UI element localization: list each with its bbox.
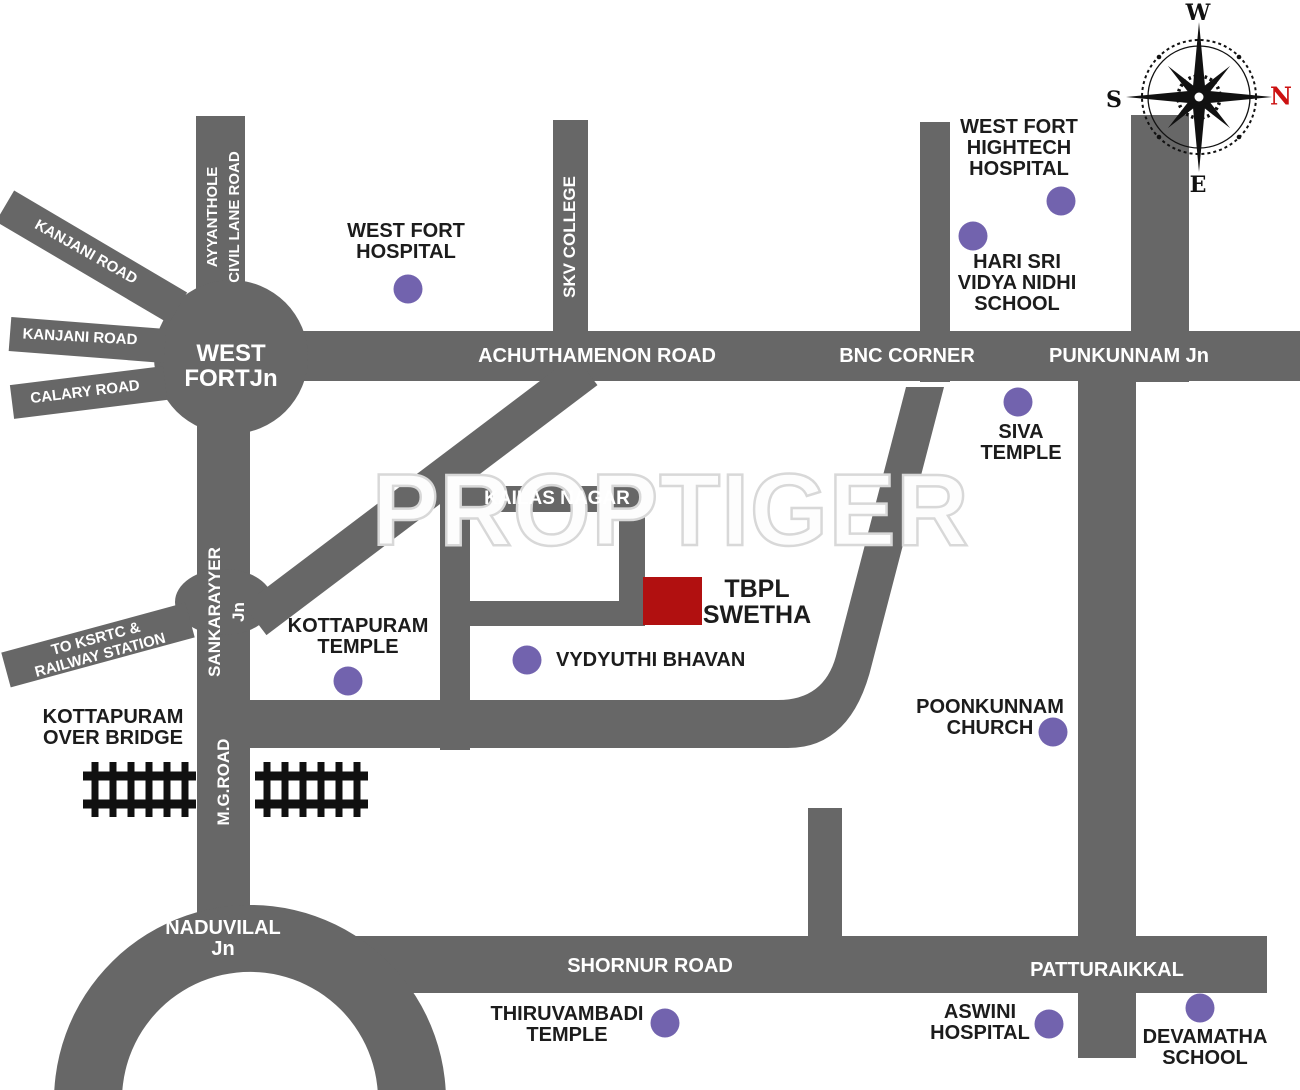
- west-fort-hospital-dot: [394, 275, 423, 304]
- watermark: PROPTIGER: [372, 452, 970, 569]
- project-name-line1: TBPL: [703, 576, 811, 602]
- west-fort-jn-label: WEST FORTJn: [184, 341, 277, 391]
- hari-sri-school-dot: [959, 222, 988, 251]
- west-fort-jn-line2: FORTJn: [184, 366, 277, 391]
- hari-sri-line3: SCHOOL: [958, 294, 1077, 315]
- kottapuram-temple-line1: KOTTAPURAM: [288, 616, 429, 637]
- devamatha-school-label: DEVAMATHA SCHOOL: [1143, 1027, 1268, 1069]
- project-marker: [643, 577, 702, 625]
- hightech-line2: HIGHTECH: [960, 138, 1078, 159]
- naduvilal-line2: Jn: [165, 939, 281, 960]
- west-fort-hightech-hospital-dot: [1047, 187, 1076, 216]
- thiruvambadi-line2: TEMPLE: [491, 1025, 644, 1046]
- siva-temple-label: SIVA TEMPLE: [980, 422, 1061, 464]
- compass-east-label: E: [1190, 172, 1207, 198]
- hightech-line3: HOSPITAL: [960, 159, 1078, 180]
- shornur-road-label: SHORNUR ROAD: [567, 956, 733, 977]
- devamatha-line1: DEVAMATHA: [1143, 1027, 1268, 1048]
- skv-college-label: SKV COLLEGE: [558, 176, 582, 298]
- west-fort-jn-line1: WEST: [184, 341, 277, 366]
- aswini-hospital-dot: [1035, 1010, 1064, 1039]
- kottapuram-bridge-line2: OVER BRIDGE: [43, 728, 184, 749]
- aswini-line2: HOSPITAL: [930, 1023, 1030, 1044]
- siva-temple-dot: [1004, 388, 1033, 417]
- devamatha-school-dot: [1186, 994, 1215, 1023]
- kailas-nagar-label: KAILAS NAGAR: [484, 488, 630, 509]
- railway-left-segment: [83, 762, 196, 817]
- west-fort-hospital-line1: WEST FORT: [347, 221, 465, 242]
- project-name-label: TBPL SWETHA: [703, 576, 811, 628]
- thiruvambadi-line1: THIRUVAMBADI: [491, 1004, 644, 1025]
- hari-sri-vidya-nidhi-school-label: HARI SRI VIDYA NIDHI SCHOOL: [958, 252, 1077, 315]
- mg-road-label: M.G.ROAD: [212, 739, 236, 826]
- shornur-stub-road-shape: [808, 808, 842, 939]
- naduvilal-line1: NADUVILAL: [165, 918, 281, 939]
- hari-sri-line1: HARI SRI: [958, 252, 1077, 273]
- railway-right-segment: [255, 762, 368, 817]
- aswini-line1: ASWINI: [930, 1002, 1030, 1023]
- bnc-corner-label: BNC CORNER: [839, 346, 975, 367]
- achuthamenon-road-label: ACHUTHAMENON ROAD: [478, 346, 716, 367]
- vydyuthi-bhavan-label: VYDYUTHI BHAVAN: [556, 650, 745, 671]
- kottapuram-bridge-line1: KOTTAPURAM: [43, 707, 184, 728]
- sankarayyer-line1: SANKARAYYER: [203, 547, 227, 677]
- poonkunnam-line1: POONKUNNAM: [916, 697, 1064, 718]
- compass-north-label: N: [1270, 82, 1292, 111]
- kottapuram-temple-label: KOTTAPURAM TEMPLE: [288, 616, 429, 658]
- west-fort-hospital-label: WEST FORT HOSPITAL: [347, 221, 465, 263]
- thiruvambadi-temple-label: THIRUVAMBADI TEMPLE: [491, 1004, 644, 1046]
- compass-west-label: W: [1186, 0, 1211, 26]
- punkunnam-jn-label: PUNKUNNAM Jn: [1049, 346, 1209, 367]
- kailas-bottom-road-shape: [470, 601, 645, 626]
- devamatha-line2: SCHOOL: [1143, 1048, 1268, 1069]
- sankarayyer-jn-label: SANKARAYYER Jn: [203, 547, 251, 677]
- ayyanthole-line1: AYYANTHOLE: [202, 151, 224, 282]
- west-fort-hightech-hospital-label: WEST FORT HIGHTECH HOSPITAL: [960, 117, 1078, 180]
- compass-south-label: S: [1106, 87, 1122, 113]
- sankarayyer-mg-road-shape: [197, 420, 250, 965]
- poonkunnam-church-dot: [1039, 718, 1068, 747]
- aswini-hospital-label: ASWINI HOSPITAL: [930, 1002, 1030, 1044]
- kottapuram-over-bridge-label: KOTTAPURAM OVER BRIDGE: [43, 707, 184, 749]
- sankarayyer-line2: Jn: [227, 547, 251, 677]
- ayyanthole-line2: CIVIL LANE ROAD: [224, 151, 246, 282]
- patturaikkal-label: PATTURAIKKAL: [1030, 960, 1184, 981]
- ayyanthole-road-label: AYYANTHOLE CIVIL LANE ROAD: [202, 151, 246, 282]
- siva-line1: SIVA: [980, 422, 1061, 443]
- siva-line2: TEMPLE: [980, 443, 1061, 464]
- hari-sri-line2: VIDYA NIDHI: [958, 273, 1077, 294]
- naduvilal-jn-label: NADUVILAL Jn: [165, 918, 281, 960]
- project-name-line2: SWETHA: [703, 602, 811, 628]
- thiruvambadi-temple-dot: [651, 1009, 680, 1038]
- hightech-line1: WEST FORT: [960, 117, 1078, 138]
- kottapuram-temple-line2: TEMPLE: [288, 637, 429, 658]
- vydyuthi-bhavan-dot: [513, 646, 542, 675]
- kottapuram-temple-dot: [334, 667, 363, 696]
- location-map: PROPTIGER ACHUTHAMENON ROAD BNC CORNER P…: [0, 0, 1300, 1090]
- west-fort-hospital-line2: HOSPITAL: [347, 242, 465, 263]
